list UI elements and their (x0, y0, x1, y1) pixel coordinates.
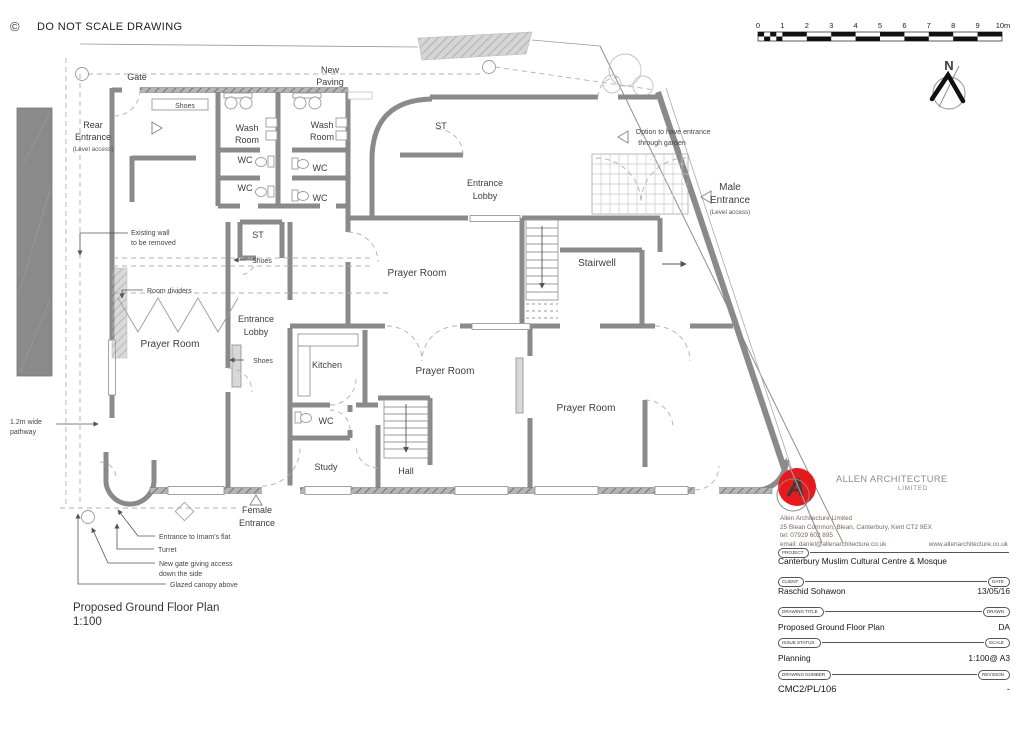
drawing-title-label-row: DRAWING TITLE DRAWN (778, 607, 1010, 617)
label-hall: Hall (398, 466, 414, 476)
drawing-title-value: Proposed Ground Floor Plan (778, 622, 885, 632)
label-rear-entrance: Rear (83, 120, 103, 130)
label-shoes: Shoes (253, 358, 273, 365)
label-male-entrance: Entrance (710, 195, 750, 206)
label-shoes: Shoes (175, 103, 195, 110)
label-wc: WC (313, 193, 328, 203)
project-value: Canterbury Muslim Cultural Centre & Mosq… (778, 556, 1018, 566)
label-rear-entrance-access: (Level access) (73, 146, 114, 153)
drawn-label: DRAWN (983, 607, 1010, 617)
scale-tick: 3 (829, 21, 833, 30)
plan-title: Proposed Ground Floor Plan (73, 602, 219, 614)
scale-tick: 0 (756, 21, 760, 30)
label-new-paving: New (321, 65, 340, 75)
drawing-number-label-row: DRAWING NUMBER REVISION (778, 670, 1010, 680)
scale-tick: 1 (780, 21, 784, 30)
label-prayer-room: Prayer Room (141, 339, 200, 350)
brand: ALLEN ARCHITECTURE LIMITED (836, 474, 928, 492)
scale-tick: 7 (927, 21, 931, 30)
brand-suffix: LIMITED (836, 485, 928, 492)
label-kitchen: Kitchen (312, 360, 342, 370)
tiled-entrance (592, 154, 688, 214)
label-prayer-room: Prayer Room (416, 366, 475, 377)
issue-status-label: ISSUE STATUS (778, 638, 821, 648)
scale-tick: 6 (902, 21, 906, 30)
label-male-entrance-access: (Level access) (710, 209, 751, 216)
scale-tick: 2 (805, 21, 809, 30)
drawing-title-value-row: Proposed Ground Floor Plan DA (778, 622, 1010, 632)
label-female-entrance: Female (242, 505, 272, 515)
label-new-gate: down the side (159, 571, 202, 578)
label-glazed-canopy: Glazed canopy above (170, 582, 238, 589)
label-existing-wall: Existing wall (131, 230, 170, 237)
address-line: tel: 07929 602 895 (780, 532, 1008, 541)
drawing-number-value: CMC2/PL/106 (778, 684, 836, 694)
label-entrance-lobby: Entrance (467, 178, 503, 188)
label-wash-room: Wash (236, 123, 259, 133)
north-label: N (944, 58, 953, 73)
label-gate: Gate (127, 72, 147, 82)
label-wash-room: Wash (311, 120, 334, 130)
address-block: Allen Architecture Limited 25 Blean Comm… (780, 515, 1008, 549)
issue-status-label-row: ISSUE STATUS SCALE (778, 638, 1010, 648)
label-option-entrance: through garden (638, 140, 686, 147)
label-entrance-lobby: Lobby (473, 191, 498, 201)
label-wc: WC (238, 155, 253, 165)
label-wash-room: Room (235, 135, 259, 145)
revision-value: - (1007, 684, 1010, 694)
drawing-sheet: © DO NOT SCALE DRAWING 0 1 2 3 4 5 6 7 8… (0, 0, 1024, 724)
plan-scale: 1:100 (73, 616, 102, 628)
label-existing-wall: to be removed (131, 240, 176, 247)
label-prayer-room: Prayer Room (557, 403, 616, 414)
label-female-entrance: Entrance (239, 518, 275, 528)
drawn-value: DA (998, 622, 1010, 632)
label-pathway: 1.2m wide (10, 419, 42, 426)
scale-tick: 8 (951, 21, 955, 30)
scale-tick: 9 (976, 21, 980, 30)
label-wash-room: Room (310, 132, 334, 142)
scale-tick: 5 (878, 21, 882, 30)
label-pathway: pathway (10, 429, 37, 436)
label-turret: Turret (158, 547, 176, 554)
issue-status-value-row: Planning 1:100@ A3 (778, 653, 1010, 663)
scale-tick: 4 (854, 21, 858, 30)
leader-lines (56, 233, 246, 584)
do-not-scale-note: DO NOT SCALE DRAWING (37, 21, 183, 33)
date-value: 13/05/16 (977, 586, 1010, 596)
north-arrow-icon: N (932, 58, 965, 109)
address-line: 25 Blean Common, Blean, Canterbury, Kent… (780, 524, 1008, 533)
label-wc: WC (313, 163, 328, 173)
label-stairwell: Stairwell (578, 258, 616, 269)
label-wc: WC (238, 183, 253, 193)
client-value: Raschid Sohawon (778, 586, 846, 596)
scale-bar: 0 1 2 3 4 5 6 7 8 9 10m (756, 21, 1010, 41)
label-male-entrance: Male (719, 182, 741, 193)
label-wc: WC (319, 416, 334, 426)
client-value-row: Raschid Sohawon 13/05/16 (778, 586, 1010, 596)
scale-tick: 10m (996, 21, 1011, 30)
scale-label: SCALE (985, 638, 1010, 648)
issue-status-value: Planning (778, 653, 811, 663)
walls (106, 88, 790, 504)
label-rear-entrance: Entrance (75, 132, 111, 142)
address-line: Allen Architecture Limited (780, 515, 1008, 524)
logo-letter: A (786, 474, 805, 502)
label-st: ST (252, 230, 264, 240)
revision-label: REVISION (978, 670, 1010, 680)
drawing-title-label: DRAWING TITLE (778, 607, 824, 617)
label-prayer-room: Prayer Room (388, 268, 447, 279)
label-entrance-lobby: Entrance (238, 314, 274, 324)
label-study: Study (314, 462, 338, 472)
room-divider-stack (112, 268, 127, 358)
label-st: ST (435, 121, 447, 131)
scale-value: 1:100@ A3 (968, 653, 1010, 663)
label-room-dividers: Room dividers (147, 288, 192, 295)
label-imams-flat: Entrance to Imam's flat (159, 534, 230, 541)
label-new-paving: Paving (316, 77, 344, 87)
label-option-entrance: Option to have entrance (636, 129, 711, 136)
brand-name: ALLEN ARCHITECTURE (836, 474, 928, 484)
drawing-number-label: DRAWING NUMBER (778, 670, 831, 680)
label-entrance-lobby: Lobby (244, 327, 269, 337)
label-shoes: Shoes (252, 258, 272, 265)
label-new-gate: New gate giving access (159, 561, 233, 568)
copyright-icon: © (10, 19, 20, 34)
drawing-number-value-row: CMC2/PL/106 - (778, 684, 1010, 694)
